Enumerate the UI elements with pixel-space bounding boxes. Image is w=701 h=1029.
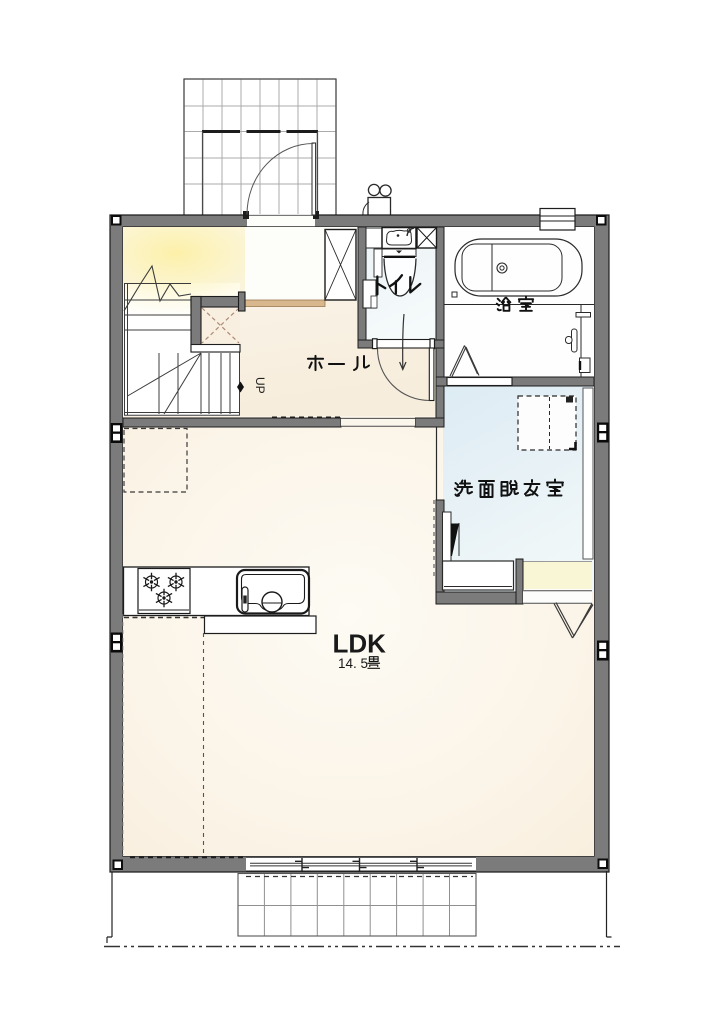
- svg-text:14. 5: 14. 5: [338, 656, 368, 671]
- svg-text:LDK: LDK: [333, 629, 387, 659]
- svg-text:UP: UP: [253, 377, 267, 394]
